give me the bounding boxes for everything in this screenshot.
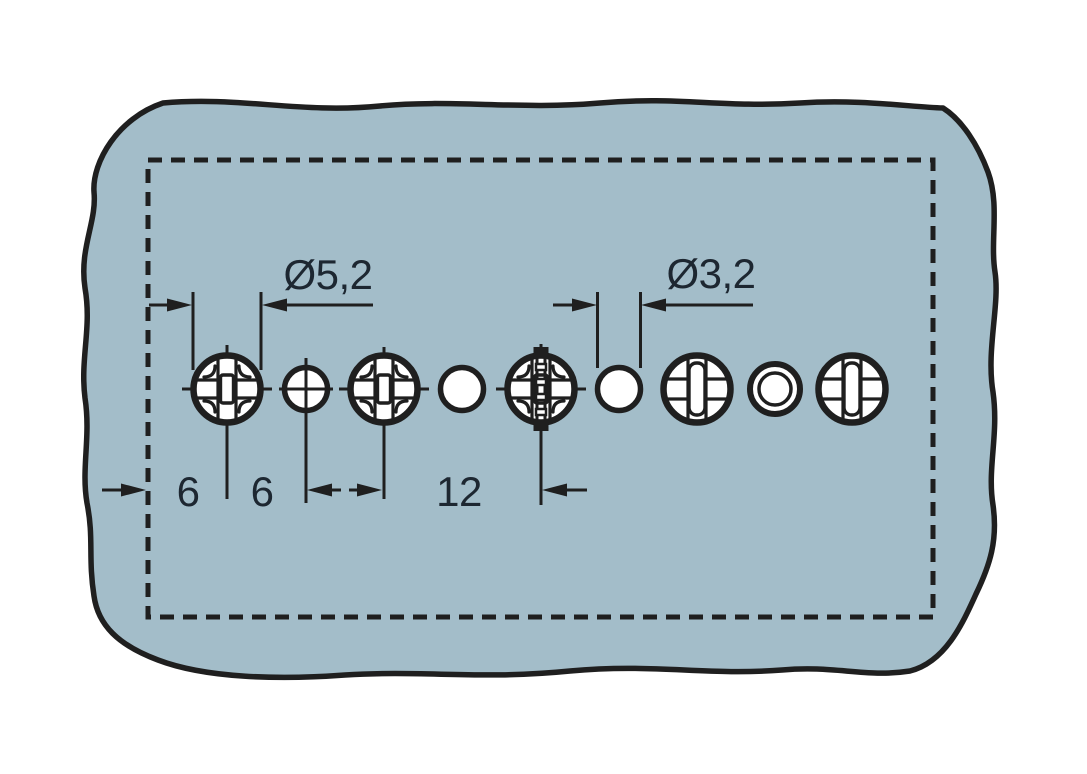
label-double-pitch: 12 xyxy=(436,468,482,515)
label-diameter-large: Ø5,2 xyxy=(283,251,372,298)
drilling-plan-diagram: Ø5,2 Ø3,2 6 6 12 xyxy=(0,0,1087,774)
hole-3-large-cross xyxy=(351,356,418,423)
hole-9-large-recess xyxy=(819,356,886,423)
label-hole-pitch: 6 xyxy=(251,468,274,515)
hole-7-large-recess xyxy=(664,356,731,423)
label-diameter-small: Ø3,2 xyxy=(666,250,755,297)
hole-1-large-cross xyxy=(194,356,261,423)
label-edge-distance: 6 xyxy=(177,468,200,515)
hole-4-small-plain xyxy=(441,368,484,411)
drilling-plan-canvas: Ø5,2 Ø3,2 6 6 12 xyxy=(0,0,1087,774)
hole-6-small-plain xyxy=(598,368,641,411)
hole-8-ring-collar xyxy=(750,364,800,414)
